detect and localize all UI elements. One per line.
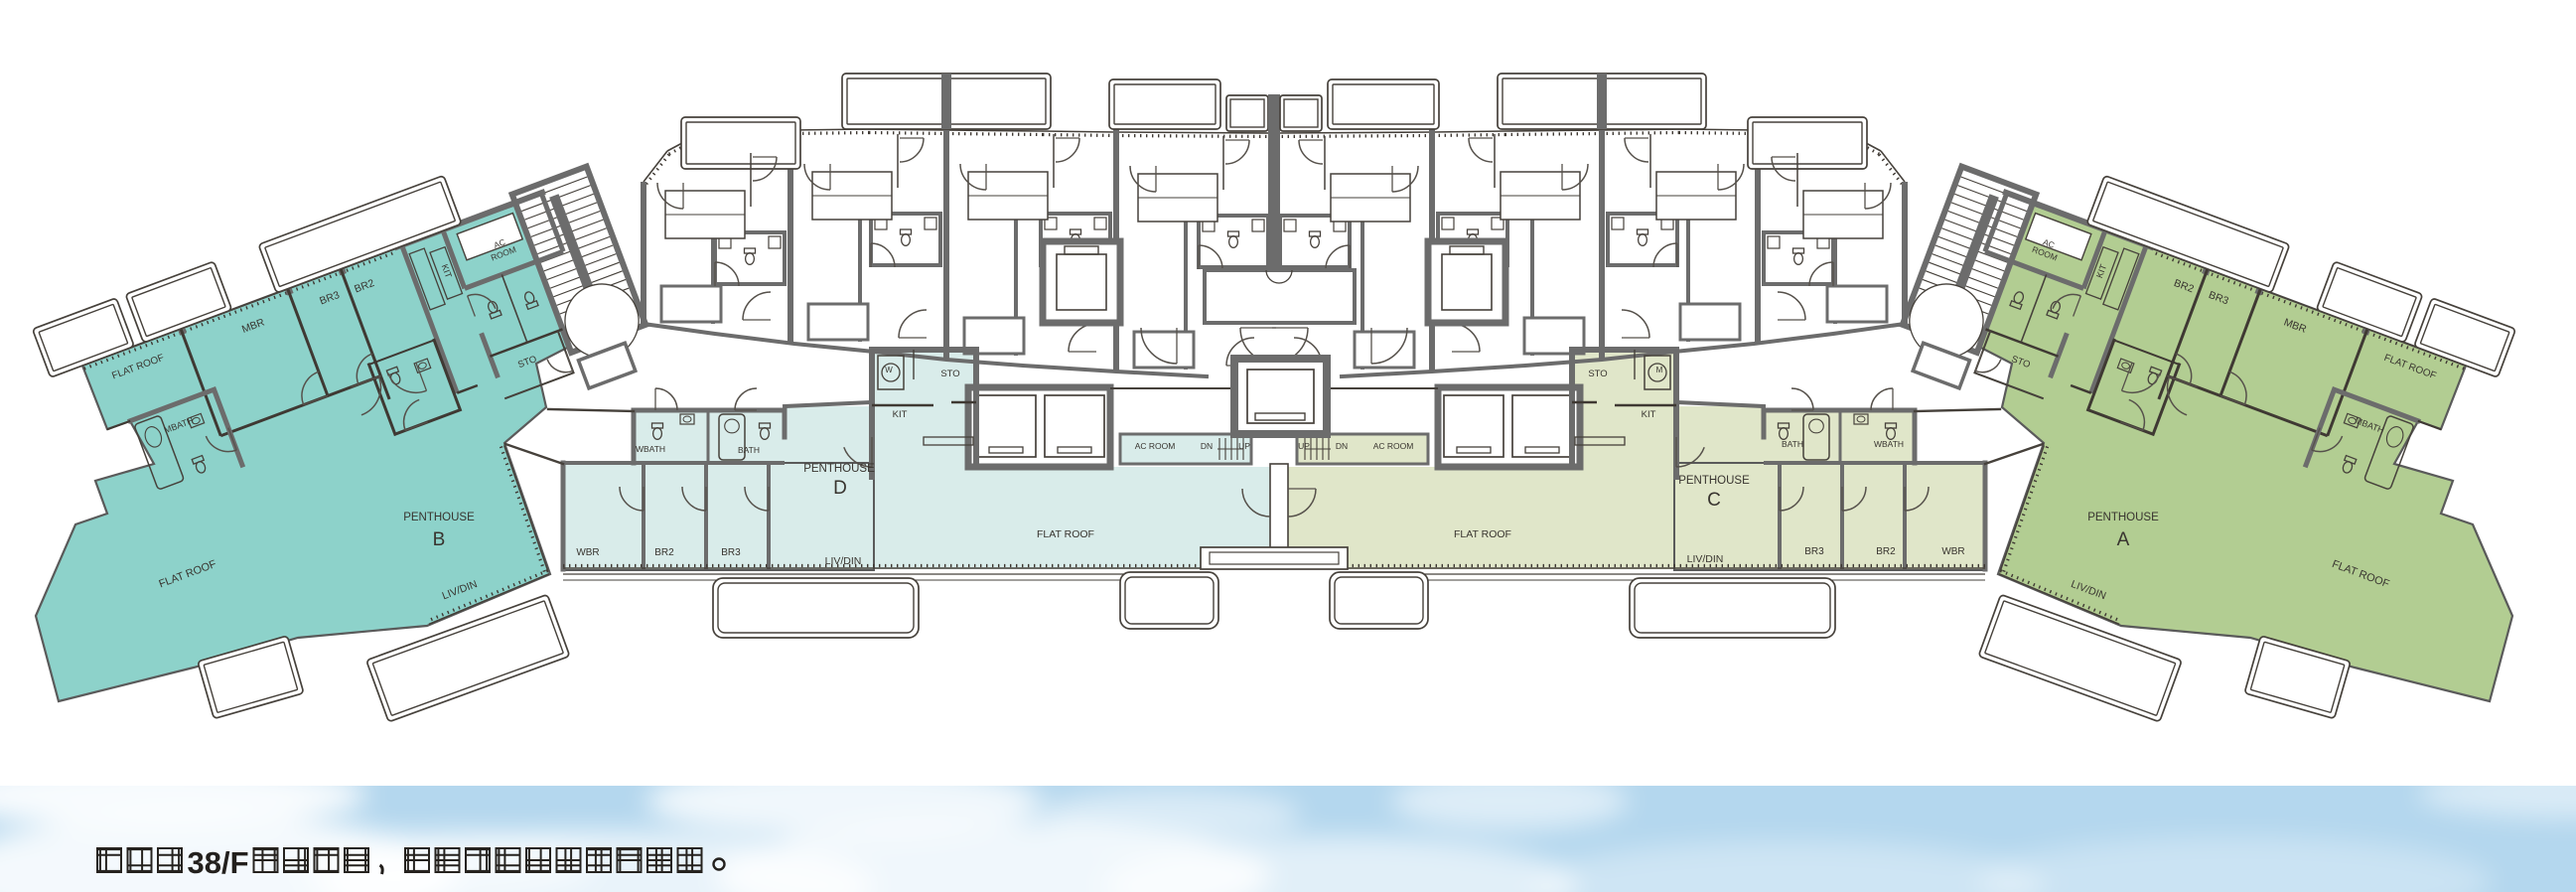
svg-text:WBATH: WBATH xyxy=(1874,439,1904,449)
svg-text:KIT: KIT xyxy=(893,409,908,420)
svg-text:LIV/DIN: LIV/DIN xyxy=(1687,553,1724,565)
svg-text:STO: STO xyxy=(940,369,959,379)
svg-text:PENTHOUSE: PENTHOUSE xyxy=(2087,512,2159,523)
svg-text:BR3: BR3 xyxy=(721,547,741,558)
svg-text:BR2: BR2 xyxy=(1876,546,1896,557)
svg-text:C: C xyxy=(1707,490,1721,511)
svg-text:M: M xyxy=(1656,366,1663,374)
svg-text:WBATH: WBATH xyxy=(636,444,665,454)
svg-text:D: D xyxy=(833,478,847,499)
svg-text:KIT: KIT xyxy=(1642,409,1656,420)
svg-text:A: A xyxy=(2117,529,2130,550)
svg-text:PENTHOUSE: PENTHOUSE xyxy=(1678,475,1750,487)
svg-text:PENTHOUSE: PENTHOUSE xyxy=(403,512,475,523)
svg-text:AC ROOM: AC ROOM xyxy=(1135,441,1176,451)
svg-text:DN: DN xyxy=(1336,441,1348,451)
svg-text:FLAT ROOF: FLAT ROOF xyxy=(1037,528,1094,540)
svg-text:FLAT ROOF: FLAT ROOF xyxy=(1454,528,1511,540)
svg-text:W: W xyxy=(885,366,893,374)
svg-text:B: B xyxy=(433,529,446,550)
svg-text:LIV/DIN: LIV/DIN xyxy=(825,555,862,567)
svg-text:BR2: BR2 xyxy=(654,547,674,558)
svg-text:WBR: WBR xyxy=(1941,546,1964,557)
svg-text:DN: DN xyxy=(1201,441,1213,451)
svg-text:WBR: WBR xyxy=(576,547,599,558)
svg-text:PENTHOUSE: PENTHOUSE xyxy=(803,463,875,475)
svg-text:BATH: BATH xyxy=(738,445,760,455)
svg-text:AC ROOM: AC ROOM xyxy=(1373,441,1414,451)
svg-text:UP: UP xyxy=(1298,441,1310,451)
svg-text:BATH: BATH xyxy=(1782,439,1803,449)
svg-text:UP: UP xyxy=(1238,441,1250,451)
svg-text:38/F: 38/F xyxy=(188,845,249,880)
svg-text:BR3: BR3 xyxy=(1804,546,1824,557)
svg-text:STO: STO xyxy=(1588,369,1607,379)
